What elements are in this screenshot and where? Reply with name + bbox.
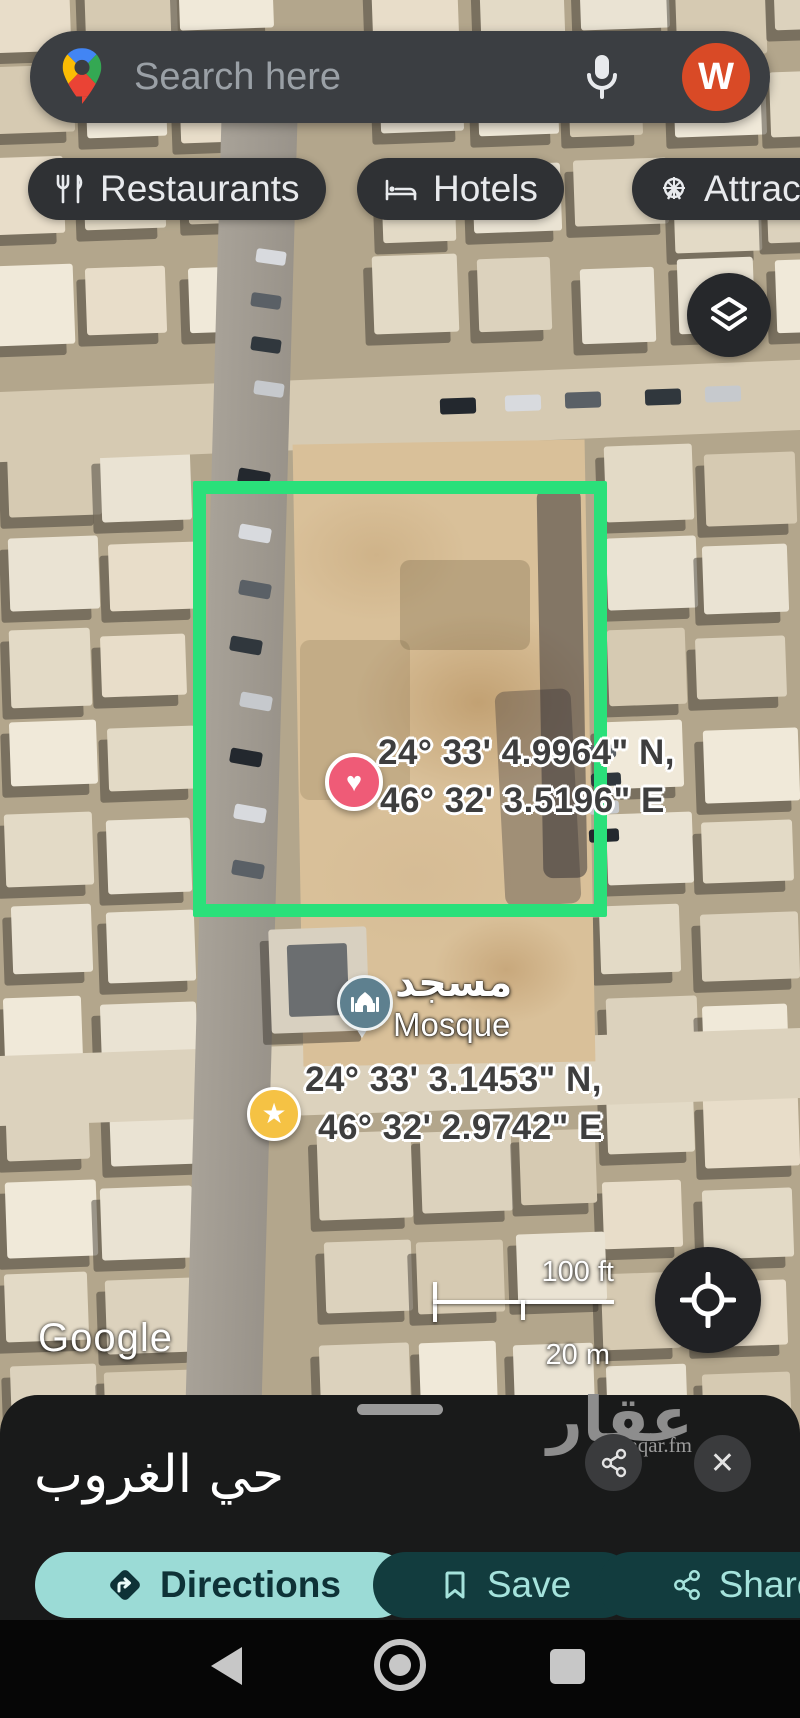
search-input[interactable]: Search here (134, 31, 341, 123)
chip-label: Restaurants (100, 168, 300, 210)
bookmark-icon (437, 1567, 473, 1603)
microphone-icon[interactable] (582, 51, 622, 103)
share-nodes-icon (597, 1446, 631, 1480)
share-place-button[interactable] (585, 1434, 642, 1491)
heart-place-marker[interactable]: ♥ (325, 753, 383, 811)
directions-label: Directions (160, 1564, 341, 1606)
plot-outline-square (193, 481, 607, 917)
layers-icon (705, 291, 753, 339)
star-coordinates-line1: 24° 33' 3.1453" N, (305, 1060, 602, 1100)
mosque-label-arabic: مسجد (395, 960, 512, 1006)
account-avatar[interactable]: W (682, 43, 750, 111)
bed-icon (383, 173, 419, 205)
star-icon: ★ (261, 1100, 286, 1128)
fork-knife-icon (54, 173, 86, 205)
home-dot (389, 1654, 411, 1676)
scale-imperial: 100 ft (433, 1256, 614, 1289)
share-nodes-icon (669, 1567, 705, 1603)
mosque-poi-marker[interactable] (337, 975, 393, 1031)
google-watermark: Google (38, 1316, 173, 1361)
recents-icon[interactable] (550, 1649, 585, 1684)
plot-coordinates-line2: 46° 32' 3.5196" E (380, 781, 665, 821)
plot-coordinates-line1: 24° 33' 4.9964" N, (378, 733, 675, 773)
chip-hotels[interactable]: Hotels (357, 158, 564, 220)
back-icon[interactable] (211, 1647, 242, 1685)
chip-restaurants[interactable]: Restaurants (28, 158, 326, 220)
save-button[interactable]: Save (373, 1552, 635, 1618)
scale-metric: 20 m (433, 1339, 610, 1372)
share-button[interactable]: Share (598, 1552, 800, 1618)
avatar-letter: W (698, 56, 734, 99)
scale-tick (521, 1300, 525, 1320)
android-nav-bar (0, 1620, 800, 1718)
chip-label: Attractions (704, 168, 800, 210)
search-bar[interactable]: Search here W (30, 31, 770, 123)
ferris-wheel-icon (658, 173, 690, 205)
close-sheet-button[interactable]: ✕ (694, 1435, 751, 1492)
save-label: Save (487, 1564, 571, 1606)
star-saved-marker[interactable]: ★ (247, 1087, 301, 1141)
mosque-label-english: Mosque (393, 1006, 510, 1044)
close-icon: ✕ (710, 1449, 735, 1479)
chip-label: Hotels (433, 168, 538, 210)
directions-icon (104, 1564, 146, 1606)
map-scale-bar: 100 ft 20 m (433, 1256, 614, 1372)
mosque-icon (349, 987, 381, 1019)
map-layers-button[interactable] (687, 273, 771, 357)
home-icon[interactable] (374, 1639, 426, 1691)
share-label: Share (719, 1564, 800, 1606)
directions-button[interactable]: Directions (35, 1552, 410, 1618)
place-title: حي الغروب (34, 1445, 284, 1505)
star-coordinates-line2: 46° 32' 2.9742" E (318, 1108, 603, 1148)
heart-icon: ♥ (346, 769, 362, 796)
chip-attractions[interactable]: Attractions (632, 158, 800, 220)
google-maps-logo-icon (60, 47, 104, 105)
my-location-button[interactable] (655, 1247, 761, 1353)
google-maps-screen: ♥ 24° 33' 4.9964" N, 46° 32' 3.5196" E م… (0, 0, 800, 1718)
my-location-icon (680, 1272, 736, 1328)
sheet-drag-handle[interactable] (357, 1404, 443, 1415)
